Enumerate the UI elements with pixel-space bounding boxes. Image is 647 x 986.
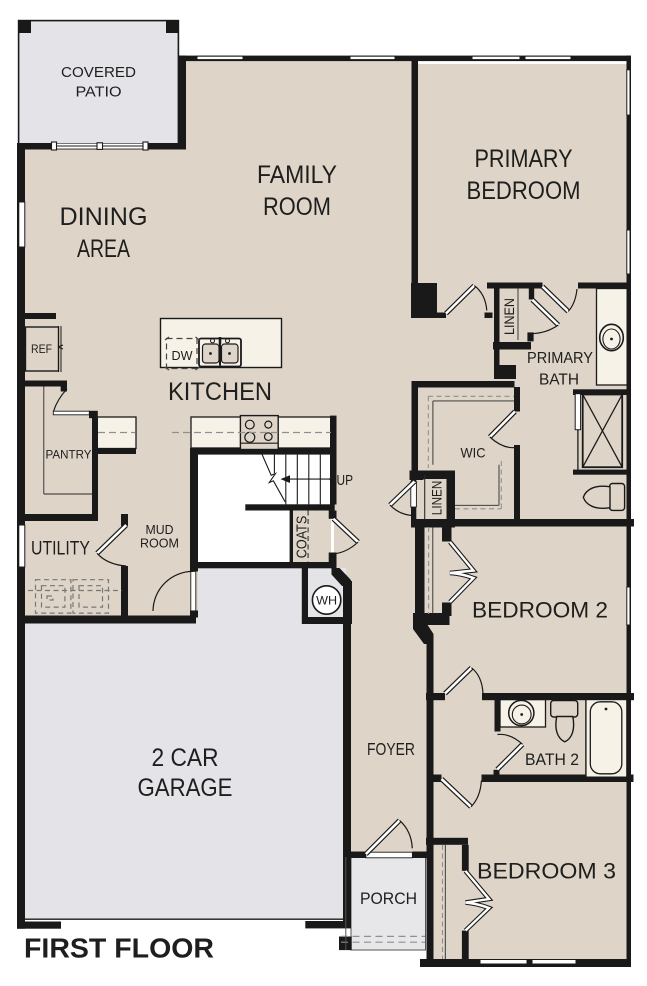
svg-text:COATS: COATS: [295, 516, 311, 559]
svg-text:BEDROOM: BEDROOM: [467, 177, 581, 205]
svg-text:AREA: AREA: [77, 235, 130, 263]
svg-text:REF: REF: [31, 344, 52, 356]
svg-text:COVERED: COVERED: [61, 64, 136, 81]
svg-text:FOYER: FOYER: [367, 739, 415, 759]
svg-text:PRIMARY: PRIMARY: [527, 350, 593, 367]
svg-text:PATIO: PATIO: [76, 84, 122, 101]
svg-text:WIC: WIC: [461, 445, 486, 461]
svg-text:BATH 2: BATH 2: [525, 750, 579, 769]
svg-text:LINEN: LINEN: [502, 298, 517, 335]
svg-text:DW: DW: [172, 349, 193, 363]
svg-text:LINEN: LINEN: [429, 481, 445, 516]
svg-text:UTILITY: UTILITY: [31, 538, 90, 560]
svg-text:DINING: DINING: [60, 203, 148, 231]
svg-text:BEDROOM 3: BEDROOM 3: [477, 859, 616, 884]
svg-text:MUD: MUD: [146, 523, 174, 537]
svg-text:WH: WH: [316, 594, 337, 608]
svg-text:PRIMARY: PRIMARY: [475, 145, 573, 173]
svg-text:BATH: BATH: [539, 372, 579, 389]
svg-text:2 CAR: 2 CAR: [152, 744, 219, 772]
svg-text:PORCH: PORCH: [360, 890, 417, 908]
svg-text:BEDROOM 2: BEDROOM 2: [472, 598, 608, 623]
svg-text:ROOM: ROOM: [263, 193, 331, 221]
svg-text:FIRST FLOOR: FIRST FLOOR: [24, 933, 214, 964]
svg-text:GARAGE: GARAGE: [138, 774, 233, 802]
svg-text:PANTRY: PANTRY: [46, 448, 92, 462]
svg-text:FAMILY: FAMILY: [257, 161, 337, 189]
svg-text:KITCHEN: KITCHEN: [168, 378, 272, 406]
svg-text:ROOM: ROOM: [140, 537, 179, 551]
svg-text:UP: UP: [337, 472, 354, 489]
